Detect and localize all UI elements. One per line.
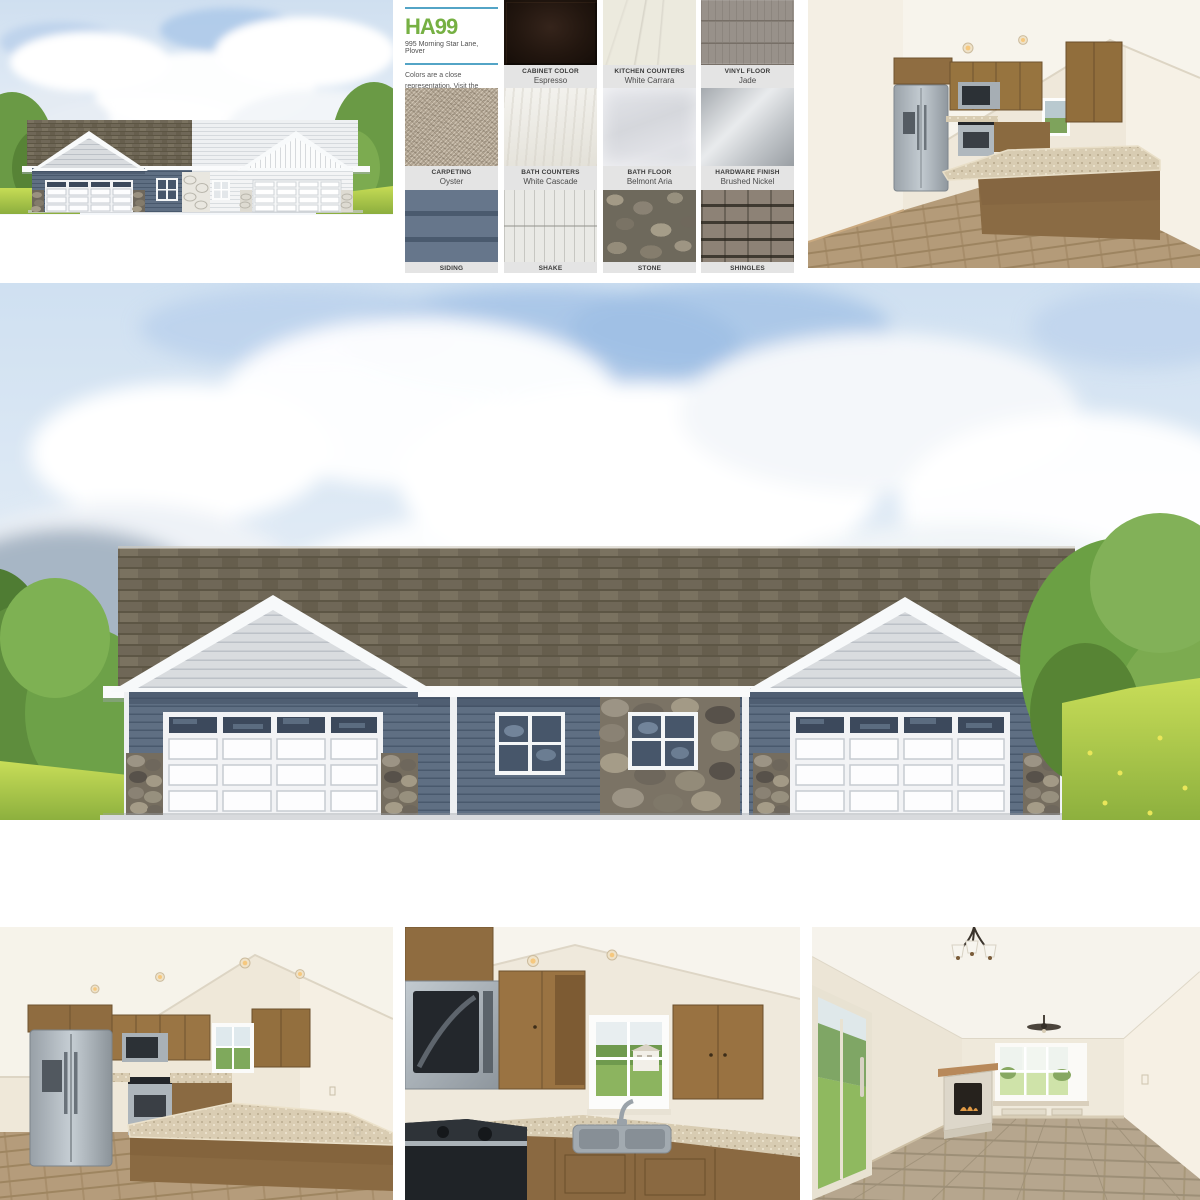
kitchen-a-illustration	[808, 0, 1200, 268]
microwave	[405, 981, 499, 1089]
gallery-photo-living-room[interactable]	[812, 927, 1200, 1200]
garage-door-right	[790, 712, 1010, 815]
gallery-photo-kitchen-wide[interactable]	[808, 0, 1200, 268]
center-window-single	[628, 712, 698, 770]
siding-swatch-chip	[405, 190, 498, 262]
door-handle	[860, 1057, 864, 1097]
stone-swatch-chip	[603, 190, 696, 262]
baseboard-heater	[1052, 1109, 1082, 1115]
grass-right	[1062, 678, 1200, 820]
fridge	[894, 85, 948, 191]
window	[587, 1015, 671, 1115]
swatch-stone: STONE	[603, 0, 696, 273]
lower-cabinets	[994, 122, 1050, 152]
swatch-shingles: SHINGLES	[701, 0, 794, 273]
fridge	[30, 1030, 112, 1166]
back-windows	[993, 1043, 1089, 1115]
garage-door-left	[45, 180, 133, 212]
stone-pillar	[381, 753, 418, 815]
gallery-photo-design-board[interactable]: HA99 995 Morning Star Lane, Plover Color…	[400, 0, 800, 273]
baseboard-heater	[1002, 1109, 1046, 1115]
swatch-shake: SHAKE	[504, 0, 597, 273]
garage-door-left	[163, 712, 383, 815]
upper-cabinets-right	[673, 1005, 763, 1099]
range	[958, 120, 994, 156]
left-wall	[808, 0, 903, 240]
gallery-photo-kitchen-sink[interactable]	[405, 927, 800, 1200]
sliding-door	[812, 985, 872, 1200]
peninsula	[128, 1103, 393, 1191]
stone-pillar	[126, 753, 163, 815]
exterior-hero-illustration	[0, 283, 1200, 820]
stone-pillar	[753, 753, 790, 815]
duplex-house	[100, 546, 1090, 820]
window-sill	[587, 1109, 671, 1115]
kitchen-c-illustration	[405, 927, 800, 1200]
swatch-siding: SIDING	[405, 0, 498, 273]
gallery-photo-kitchen-angle[interactable]	[0, 927, 393, 1200]
window	[212, 1023, 254, 1073]
kitchen-b-illustration	[0, 927, 393, 1200]
design-board: HA99 995 Morning Star Lane, Plover Color…	[400, 0, 800, 273]
counter-left	[946, 116, 998, 122]
garage-door-right-sketch	[253, 180, 341, 212]
duplex-house	[22, 120, 370, 212]
driveway	[100, 815, 1090, 820]
shingles-swatch-chip	[701, 190, 794, 262]
range-corner	[405, 1119, 527, 1200]
living-room-illustration	[812, 927, 1200, 1200]
exterior-small-illustration	[0, 0, 393, 268]
upper-cabinets-left	[499, 971, 585, 1089]
gallery-photo-exterior-half-rendering[interactable]	[0, 0, 393, 268]
gallery-photo-exterior-rendering-large[interactable]	[0, 283, 1200, 820]
cabinet-over-microwave	[405, 927, 493, 981]
window-sill	[993, 1101, 1089, 1106]
photo-collage: HA99 995 Morning Star Lane, Plover Color…	[0, 0, 1200, 1200]
fireplace	[938, 1063, 998, 1139]
shake-swatch-chip	[504, 190, 597, 262]
counter-right	[170, 1073, 232, 1083]
center-window-double	[495, 712, 565, 775]
